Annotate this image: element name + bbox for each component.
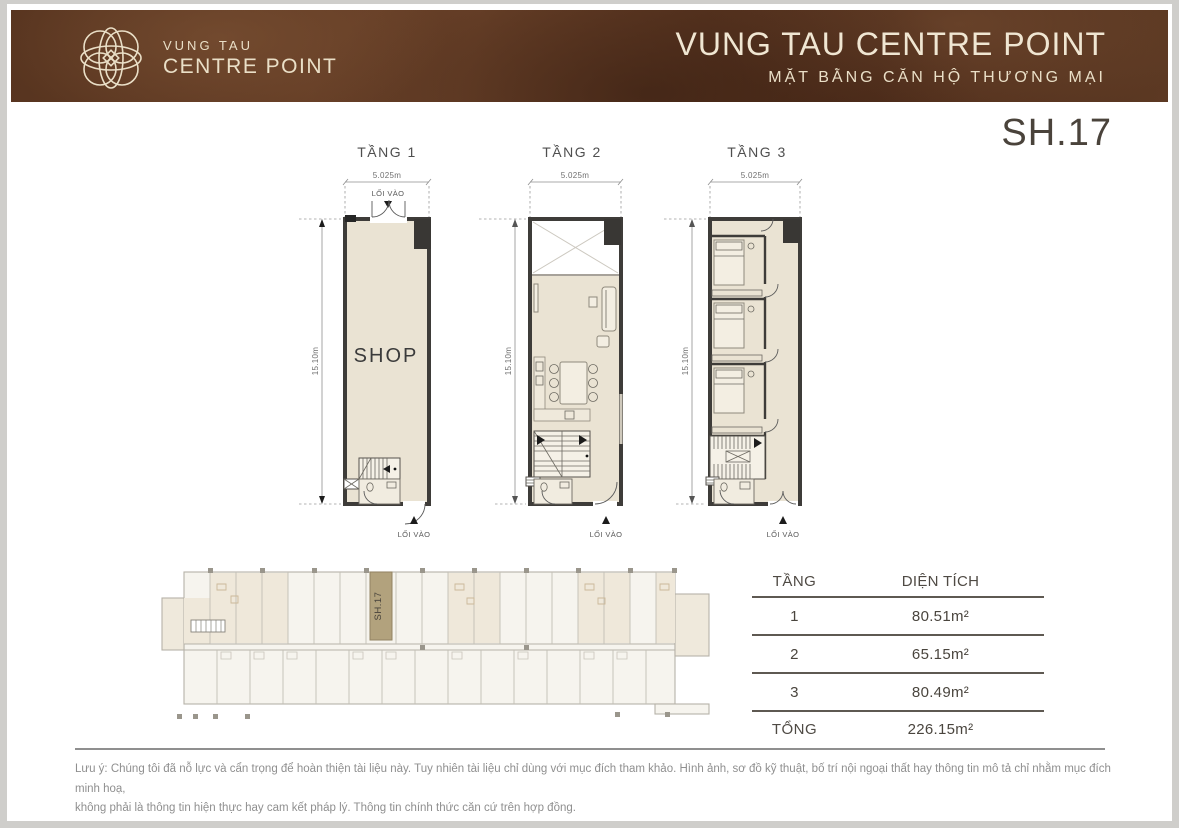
floor-value: 3 bbox=[752, 684, 837, 701]
plan3-width-dim: 5.025m bbox=[741, 171, 770, 180]
plan3-shaft bbox=[783, 219, 800, 243]
table-total-row: TỔNG 226.15m² bbox=[752, 712, 1044, 746]
total-area-value: 226.15m² bbox=[837, 721, 1044, 738]
site-plan: SH.17 bbox=[155, 554, 723, 738]
area-value: 65.15m² bbox=[837, 646, 1044, 663]
plan3-stairs bbox=[710, 436, 765, 479]
floor-value: 1 bbox=[752, 608, 837, 625]
plan1-height-dim: 15.10m bbox=[311, 347, 320, 376]
entrance-arrow-up-icon bbox=[779, 516, 787, 524]
floor-plan-1-drawing: 5.025m 15.10m LỐI VÀO SHOP bbox=[297, 164, 477, 564]
footnote-line2: không phải là thông tin hiện thực hay ca… bbox=[75, 802, 576, 814]
plan2-shaft bbox=[604, 219, 621, 245]
plan3-entrance-label: LỐI VÀO bbox=[767, 529, 800, 539]
floor3-title: TẦNG 3 bbox=[662, 144, 852, 160]
floor-value: 2 bbox=[752, 646, 837, 663]
entrance-arrow-up-icon bbox=[602, 516, 610, 524]
area-table: TẦNG DIỆN TÍCH 1 80.51m² 2 65.15m² 3 80.… bbox=[752, 566, 1044, 746]
plan3-height-dim: 15.10m bbox=[681, 347, 690, 376]
floor-plan-3-drawing: 5.025m 15.10m bbox=[662, 164, 852, 564]
plan1-stairs bbox=[359, 458, 400, 479]
logo-name-bottom: CENTRE POINT bbox=[163, 55, 337, 79]
plan1-width-dim: 5.025m bbox=[373, 171, 402, 180]
plan1-bottom-door-gap bbox=[403, 501, 425, 508]
footnote: Lưu ý: Chúng tôi đã nỗ lực và cẩn trọng … bbox=[75, 760, 1119, 819]
project-subtitle: MẶT BẰNG CĂN HỘ THƯƠNG MẠI bbox=[675, 69, 1106, 87]
logo: VUNG TAU CENTRE POINT bbox=[73, 17, 337, 99]
header-titles: VUNG TAU CENTRE POINT MẶT BẰNG CĂN HỘ TH… bbox=[675, 26, 1106, 87]
header-banner: VUNG TAU CENTRE POINT VUNG TAU CENTRE PO… bbox=[11, 10, 1168, 102]
plan2-entrance-label: LỐI VÀO bbox=[590, 529, 623, 539]
col-area-header: DIỆN TÍCH bbox=[837, 573, 1044, 590]
brochure-page: VUNG TAU CENTRE POINT VUNG TAU CENTRE PO… bbox=[7, 4, 1172, 821]
area-value: 80.49m² bbox=[837, 684, 1044, 701]
floor-plan-2-drawing: 5.025m 15.10m bbox=[477, 164, 667, 564]
total-label: TỔNG bbox=[752, 721, 837, 738]
plan2-window bbox=[620, 394, 623, 444]
site-lobby-grid bbox=[191, 620, 225, 632]
plan1-vent-box bbox=[344, 479, 359, 489]
plan1-corner-block bbox=[345, 215, 356, 222]
footnote-divider bbox=[75, 748, 1105, 750]
plan1-shaft bbox=[414, 219, 431, 249]
table-row: 1 80.51m² bbox=[752, 598, 1044, 636]
plan2-stairs bbox=[534, 431, 590, 477]
table-row: 3 80.49m² bbox=[752, 674, 1044, 712]
floor2-title: TẦNG 2 bbox=[477, 144, 667, 160]
plan2-bathroom bbox=[534, 479, 572, 504]
area-table-header: TẦNG DIỆN TÍCH bbox=[752, 566, 1044, 598]
plan3-bottom-door-gap bbox=[768, 501, 798, 508]
plan2-tv-cabinet bbox=[534, 284, 538, 312]
project-title: VUNG TAU CENTRE POINT bbox=[675, 26, 1106, 63]
shop-label: SHOP bbox=[354, 345, 419, 367]
area-value: 80.51m² bbox=[837, 608, 1044, 625]
logo-ornament-icon bbox=[73, 17, 149, 99]
plan2-width-dim: 5.025m bbox=[561, 171, 590, 180]
plan1-double-door bbox=[372, 200, 405, 217]
plan1-entrance-top-label: LỐI VÀO bbox=[372, 188, 405, 198]
plan1-bathroom bbox=[359, 479, 400, 504]
footnote-line1: Lưu ý: Chúng tôi đã nỗ lực và cẩn trọng … bbox=[75, 763, 1111, 795]
table-row: 2 65.15m² bbox=[752, 636, 1044, 674]
site-unit-sh17-label: SH.17 bbox=[373, 592, 384, 621]
floor1-title: TẦNG 1 bbox=[297, 144, 477, 160]
col-floor-header: TẦNG bbox=[752, 573, 837, 590]
plan3-bathroom bbox=[714, 479, 754, 504]
plan1-entrance-bottom-label: LỐI VÀO bbox=[398, 529, 431, 539]
logo-text: VUNG TAU CENTRE POINT bbox=[163, 38, 337, 79]
unit-code: SH.17 bbox=[1001, 112, 1112, 155]
site-unit-sh17: SH.17 bbox=[370, 572, 392, 640]
plan2-height-dim: 15.10m bbox=[504, 347, 513, 376]
logo-name-top: VUNG TAU bbox=[163, 38, 337, 53]
